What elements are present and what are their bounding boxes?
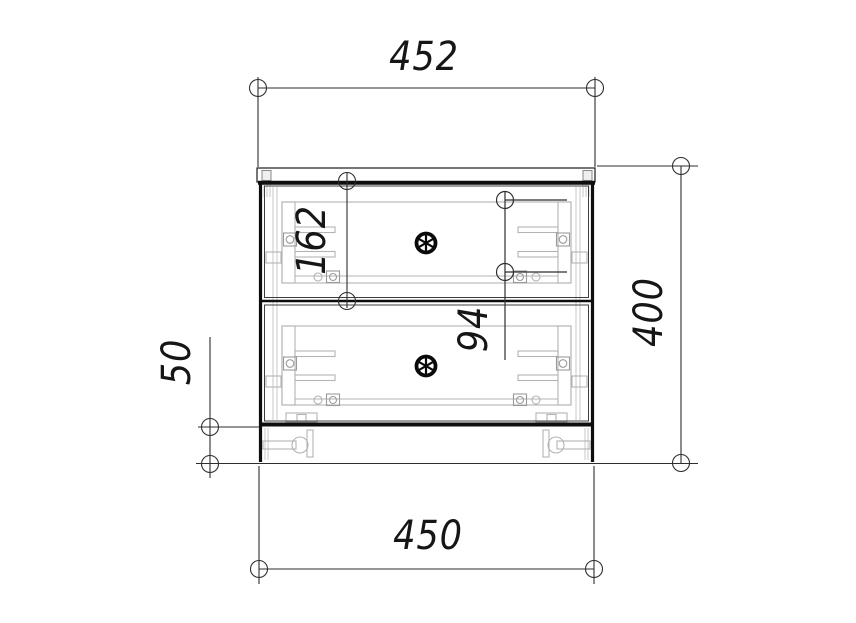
- carcase-inner-side-lines: [264, 184, 589, 460]
- dimension-top-width: [250, 77, 604, 167]
- dimension-drawer-front-height: [339, 172, 356, 310]
- dimension-overall-height: [597, 158, 698, 472]
- drawer-knob-top-icon: [417, 234, 436, 253]
- dimension-plinth-height: [198, 337, 259, 478]
- cabinet-top-panel: [257, 168, 595, 183]
- cabinet-carcase-outline: [259, 182, 594, 462]
- technical-drawing-canvas: 452 450 400 162 94 50: [0, 0, 856, 623]
- cabinet-front-view-drawing: [0, 0, 856, 623]
- plinth-feet: [263, 413, 590, 457]
- drawer-knob-bottom-icon: [417, 357, 436, 376]
- dimension-bottom-width: [251, 466, 603, 584]
